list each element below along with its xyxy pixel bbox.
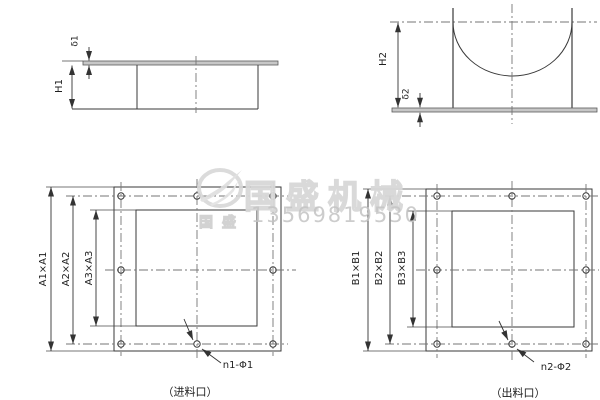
- outlet-flange-plate-section: [392, 108, 597, 112]
- dim-label-h2: H2: [379, 52, 389, 66]
- outlet-opening-square: [452, 211, 574, 327]
- outlet-caption: （出料口）: [491, 388, 546, 399]
- outlet-holes-label: n2-Φ2: [541, 363, 572, 373]
- outlet-side-view: [390, 4, 597, 127]
- dim-label-a2: A2×A2: [62, 252, 72, 287]
- watermark-brand-small-text: 国盛: [199, 212, 245, 232]
- dim-label-b3: B3×B3: [398, 251, 408, 286]
- dim-label-a3: A3×A3: [85, 251, 95, 286]
- inlet-flange-plate-section: [83, 61, 278, 65]
- inlet-side-view: [62, 47, 278, 113]
- watermark-phone-number: 13569819530: [251, 203, 420, 227]
- dim-label-delta1: δ1: [72, 35, 81, 46]
- dim-label-a1: A1×A1: [39, 252, 49, 287]
- inlet-caption: （进料口）: [163, 387, 218, 398]
- hopper-curve: [453, 22, 572, 76]
- drawing-canvas: 国盛机械 13569819530 国盛 δ1 H1 H2 δ2 A1×A1 A2…: [0, 0, 600, 400]
- dim-label-delta2: δ2: [403, 88, 412, 99]
- outlet-leader-upper: [499, 321, 508, 340]
- bird-logo-icon: [196, 167, 246, 217]
- dim-label-b2: B2×B2: [375, 251, 385, 286]
- dim-label-h1: H1: [55, 79, 65, 93]
- inlet-holes-label: n1-Φ1: [223, 361, 254, 371]
- dim-label-b1: B1×B1: [352, 251, 362, 286]
- inlet-leader-upper: [184, 319, 193, 340]
